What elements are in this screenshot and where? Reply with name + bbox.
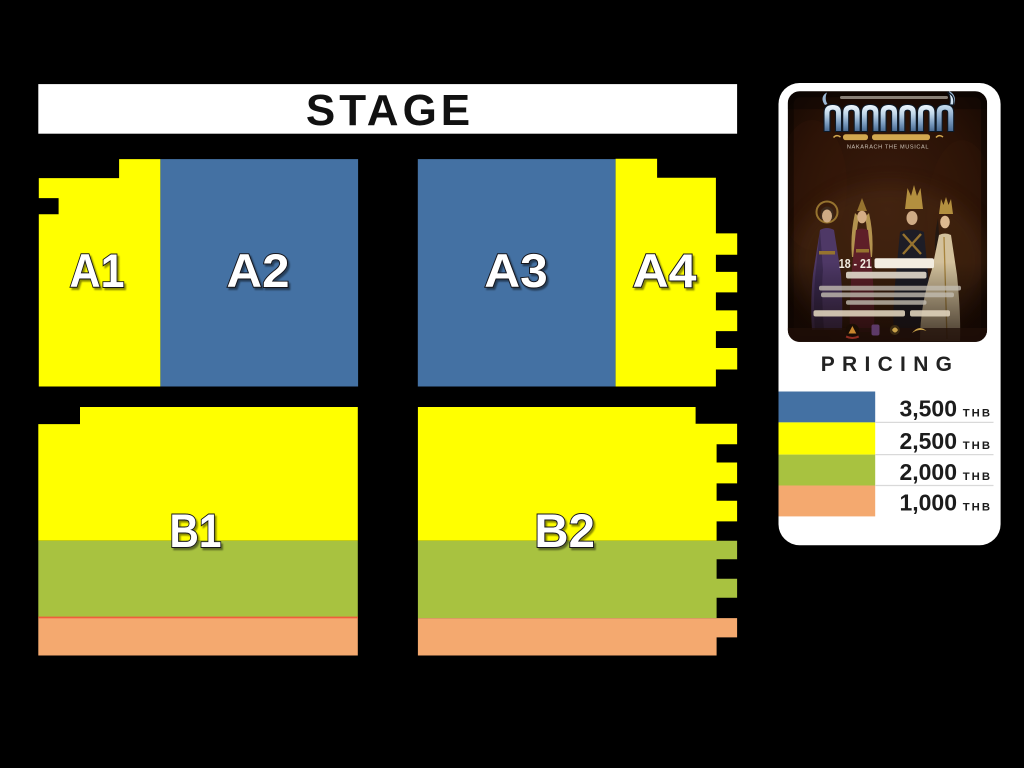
svg-text:18 - 21: 18 - 21: [839, 257, 872, 271]
svg-text:A4: A4: [633, 244, 697, 297]
svg-text:2,500: 2,500: [899, 428, 957, 454]
svg-text:3,500: 3,500: [899, 396, 957, 422]
svg-text:A2: A2: [227, 244, 290, 297]
svg-text:1,000: 1,000: [899, 490, 957, 516]
svg-text:THB: THB: [963, 502, 992, 514]
svg-text:A1: A1: [70, 244, 125, 297]
svg-text:2,000: 2,000: [899, 459, 957, 485]
svg-text:PRICING: PRICING: [821, 353, 960, 376]
svg-text:A3: A3: [484, 244, 548, 297]
svg-text:THB: THB: [963, 440, 992, 452]
svg-text:THB: THB: [963, 471, 992, 483]
svg-text:B1: B1: [170, 504, 222, 557]
svg-text:THB: THB: [963, 408, 992, 420]
svg-text:STAGE: STAGE: [306, 86, 474, 135]
svg-text:NAKARACH THE MUSICAL: NAKARACH THE MUSICAL: [847, 144, 929, 150]
svg-text:B2: B2: [534, 504, 595, 557]
